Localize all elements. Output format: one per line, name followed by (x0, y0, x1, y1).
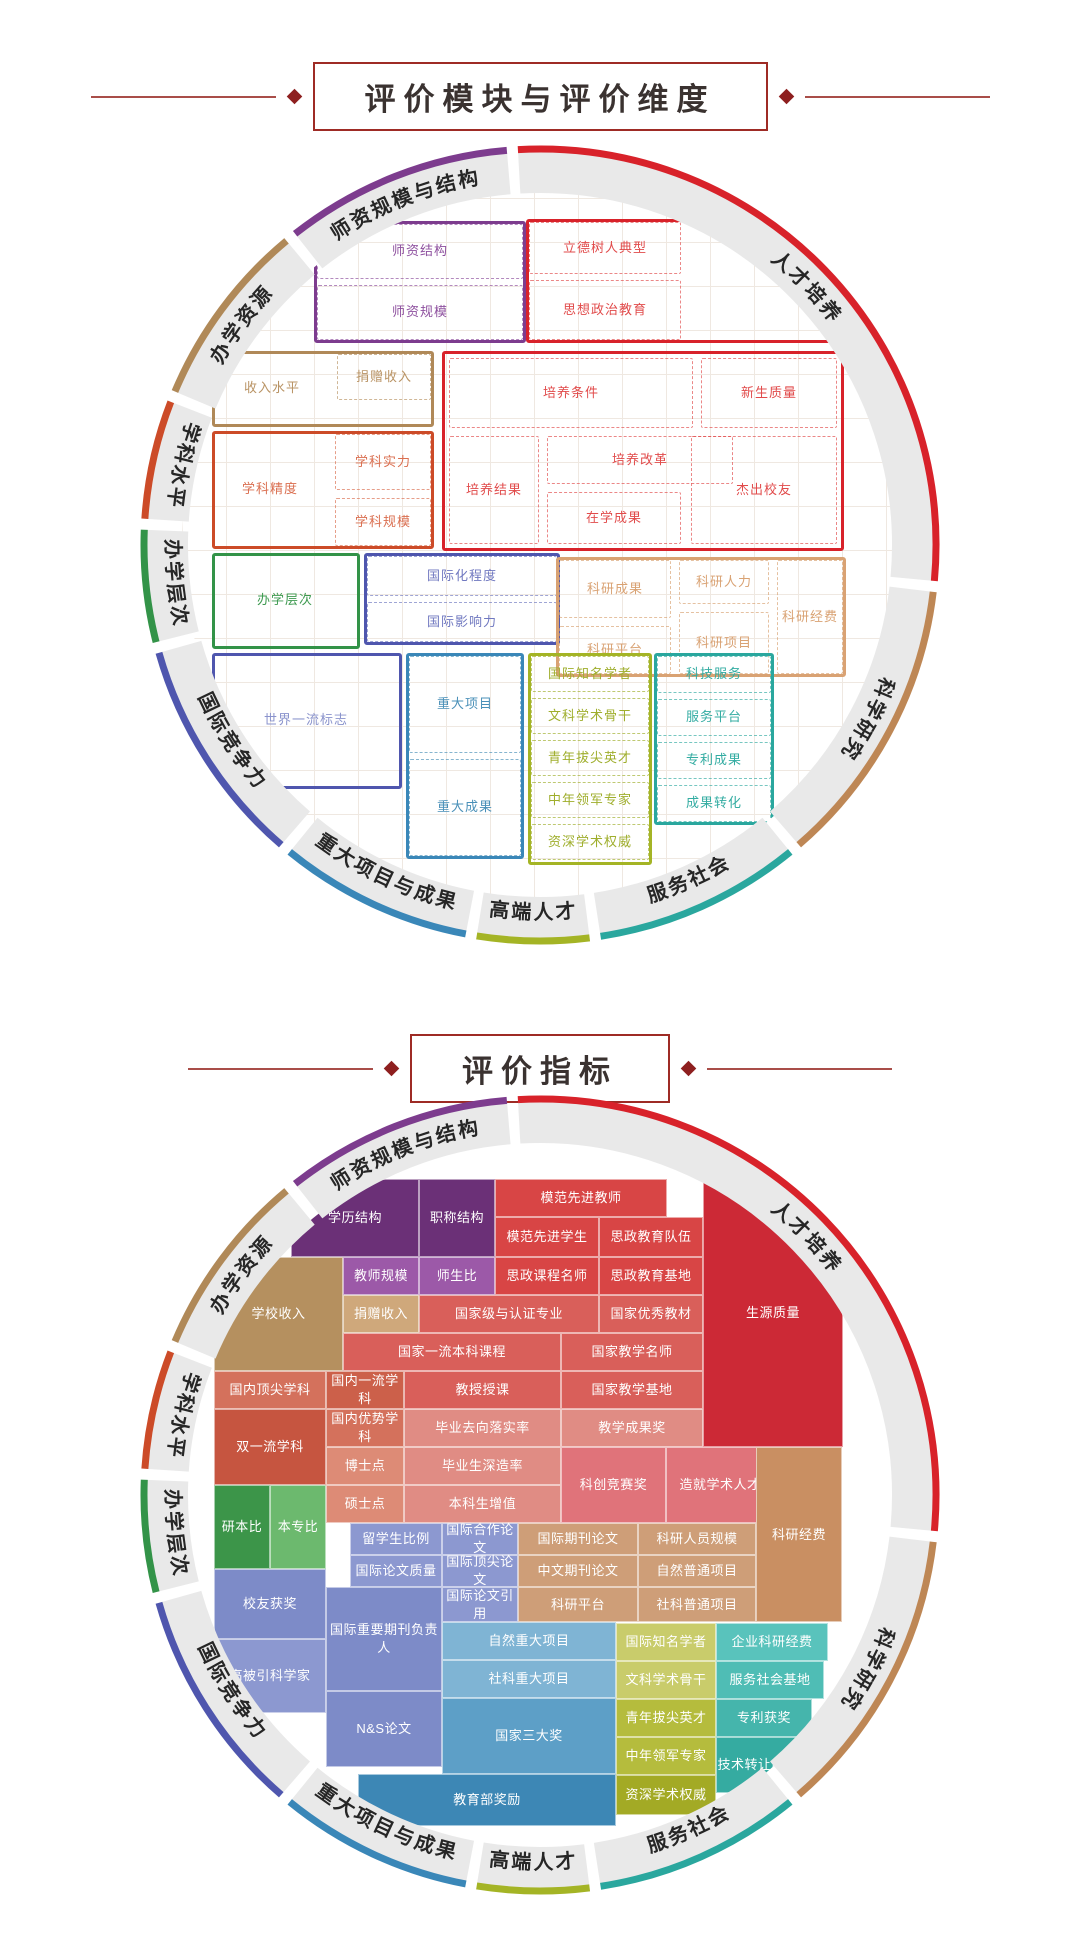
indicator-cell: 国际期刊论文 (518, 1523, 638, 1555)
indicator-label: 企业科研经费 (731, 1633, 812, 1651)
ring-color-arc-高端人才 (477, 1886, 590, 1891)
indicator-cell: 国内优势学科 (326, 1409, 404, 1447)
indicator-cell: 教学成果奖 (561, 1409, 703, 1447)
indicator-label: 职称结构 (430, 1209, 484, 1227)
indicator-label: 国际重要期刊负责人 (327, 1621, 441, 1656)
indicator-label: 造就学术人才 (679, 1476, 760, 1494)
dimension-cell: 成果转化 (657, 785, 771, 822)
indicator-label: 留学生比例 (362, 1530, 430, 1548)
diamond-icon (681, 1061, 697, 1077)
indicator-cell: 社科普通项目 (638, 1587, 756, 1622)
indicator-cell: 国家教学名师 (561, 1333, 703, 1371)
indicator-label: 国家教学名师 (591, 1343, 672, 1361)
dimension-label: 科研项目 (696, 635, 752, 652)
indicator-cell: 博士点 (326, 1447, 404, 1485)
indicator-label: 教师规模 (354, 1267, 408, 1285)
indicator-label: 校友获奖 (243, 1595, 297, 1613)
dimension-cell: 文科学术骨干 (531, 698, 649, 734)
dimension-label: 培养结果 (466, 482, 522, 499)
dimension-label: 成果转化 (686, 795, 742, 812)
diamond-icon (778, 89, 794, 105)
indicator-cell: 师生比 (419, 1257, 495, 1295)
infographic-page: 评价模块与评价维度 师资结构师资规模立德树人典型思想政治教育收入水平捐赠收入培养… (0, 0, 1080, 1950)
dimension-cell: 资深学术权威 (531, 824, 649, 860)
indicator-label: 思政教育队伍 (610, 1228, 691, 1246)
indicator-label: 中年领军专家 (625, 1747, 706, 1765)
indicator-label: 国家级与认证专业 (455, 1305, 563, 1323)
indicator-label: 双一流学科 (236, 1438, 304, 1456)
indicator-label: 模范先进学生 (506, 1228, 587, 1246)
indicator-cell: 中年领军专家 (616, 1737, 716, 1775)
indicator-cell: 服务社会基地 (716, 1661, 824, 1699)
indicator-cell: 教授授课 (404, 1371, 561, 1409)
indicator-cell: 毕业生深造率 (404, 1447, 561, 1485)
indicator-cell: 职称结构 (419, 1179, 495, 1257)
indicator-cell: 国家教学基地 (561, 1371, 703, 1409)
indicator-cell: 高被引科学家 (214, 1639, 326, 1713)
indicator-label: 国内顶尖学科 (229, 1381, 310, 1399)
indicator-cell: 本专比 (270, 1485, 326, 1569)
indicator-cell: 中文期刊论文 (518, 1555, 638, 1587)
module-dimension-diagram: 师资结构师资规模立德树人典型思想政治教育收入水平捐赠收入培养条件新生质量培养改革… (140, 145, 940, 945)
indicator-cell: 毕业去向落实率 (404, 1409, 561, 1447)
indicator-cell: 文科学术骨干 (616, 1661, 716, 1699)
indicator-cell: 国际重要期刊负责人 (326, 1587, 442, 1691)
dimension-label: 资深学术权威 (548, 834, 632, 851)
indicator-cell: 科研经费 (756, 1447, 842, 1622)
indicator-label: 技术转让收入 (717, 1756, 798, 1774)
indicator-cell: 国际论文质量 (350, 1555, 442, 1587)
indicator-cell: 自然重大项目 (442, 1622, 616, 1660)
indicator-label: 学校收入 (251, 1305, 305, 1323)
dimension-label: 办学层次 (257, 592, 313, 609)
dimension-cell: 服务平台 (657, 699, 771, 736)
indicator-label: 文科学术骨干 (625, 1671, 706, 1689)
indicator-cell: 国内顶尖学科 (214, 1371, 326, 1409)
indicator-cell: 企业科研经费 (716, 1623, 828, 1661)
indicator-cell: 留学生比例 (350, 1523, 442, 1555)
dimension-label: 培养改革 (612, 452, 668, 469)
dimension-label: 科研经费 (782, 609, 838, 626)
indicator-cell: 思政教育队伍 (599, 1217, 703, 1257)
indicator-diagram: 学历结构职称结构模范先进教师模范先进学生思政教育队伍教师规模师生比思政课程名师思… (140, 1095, 940, 1895)
dimension-cell: 捐赠收入 (337, 354, 431, 400)
diamond-icon (286, 89, 302, 105)
indicator-label: 国际论文引用 (443, 1587, 517, 1622)
left-rule-line (91, 96, 276, 98)
dimension-cell: 杰出校友 (691, 436, 837, 544)
dimension-label: 文科学术骨干 (548, 708, 632, 725)
dimension-label: 捐赠收入 (356, 369, 412, 386)
dimension-label: 师资结构 (392, 243, 448, 260)
ring-color-arc-办学层次 (144, 530, 156, 642)
dimension-cell: 新生质量 (701, 358, 837, 428)
dimension-cell: 科技服务 (657, 656, 771, 693)
indicator-cell: 资深学术权威 (616, 1775, 716, 1815)
indicator-cell: 国家优秀教材 (599, 1295, 703, 1333)
diamond-icon (384, 1061, 400, 1077)
dimension-cell: 思想政治教育 (529, 280, 681, 340)
indicator-cell: 模范先进教师 (495, 1179, 667, 1217)
indicator-label: 国际知名学者 (625, 1633, 706, 1651)
dimension-cell: 办学层次 (215, 556, 355, 644)
section2-header: 评价指标 (0, 1034, 1080, 1103)
indicator-label: 硕士点 (345, 1495, 386, 1513)
dimension-label: 新生质量 (741, 385, 797, 402)
dimension-label: 收入水平 (244, 380, 300, 397)
ring-color-arc-高端人才 (477, 936, 590, 941)
dimension-label: 服务平台 (686, 709, 742, 726)
dimension-label: 专利成果 (686, 752, 742, 769)
ring-color-arc-学科水平 (145, 402, 171, 519)
dimension-label: 立德树人典型 (563, 240, 647, 257)
dimension-cell: 在学成果 (547, 492, 681, 544)
indicator-cell: 思政课程名师 (495, 1257, 599, 1295)
indicator-label: 思政课程名师 (506, 1267, 587, 1285)
indicator-cell: 学历结构 (291, 1179, 419, 1257)
dimension-label: 国际知名学者 (548, 666, 632, 683)
indicator-label: 国际期刊论文 (537, 1530, 618, 1548)
ring-band-高端人才 (480, 1863, 586, 1868)
ring-band-办学层次 (167, 531, 178, 637)
dimension-label: 学科规模 (355, 514, 411, 531)
indicator-cell: 青年拔尖英才 (616, 1699, 716, 1737)
indicator-label: 科研平台 (551, 1596, 605, 1614)
indicator-label: 国际顶尖论文 (443, 1553, 517, 1588)
dimension-cell: 师资规模 (317, 285, 523, 340)
indicator-cell: 国家三大奖 (442, 1698, 616, 1774)
section2-title: 评价指标 (410, 1034, 670, 1103)
dimension-label: 青年拔尖英才 (548, 750, 632, 767)
dimension-label: 世界一流标志 (264, 712, 348, 729)
indicator-label: 专利获奖 (737, 1709, 791, 1727)
dimension-cell: 重大项目 (409, 656, 521, 753)
indicator-content: 学历结构职称结构模范先进教师模范先进学生思政教育队伍教师规模师生比思政课程名师思… (182, 1137, 898, 1853)
indicator-label: 本科生增值 (449, 1495, 517, 1513)
module-dimension-content: 师资结构师资规模立德树人典型思想政治教育收入水平捐赠收入培养条件新生质量培养改革… (182, 187, 898, 903)
dimension-cell: 科研经费 (777, 560, 843, 674)
indicator-cell: 模范先进学生 (495, 1217, 599, 1257)
dimension-label: 重大项目 (437, 696, 493, 713)
indicator-cell: 技术转让收入 (716, 1737, 800, 1793)
indicator-cell: 教育部奖励 (358, 1774, 616, 1826)
indicator-label: 资深学术权威 (625, 1786, 706, 1804)
dimension-cell: 科研成果 (559, 560, 671, 618)
dimension-label: 国际化程度 (427, 568, 497, 585)
dimension-label: 科研成果 (587, 581, 643, 598)
dimension-label: 国际影响力 (427, 614, 497, 631)
indicator-cell: 科研人员规模 (638, 1523, 756, 1555)
indicator-label: 服务社会基地 (729, 1671, 810, 1689)
dimension-label: 师资规模 (392, 304, 448, 321)
dimension-label: 学科实力 (355, 454, 411, 471)
ring-band-办学层次 (167, 1481, 178, 1587)
indicator-label: 捐赠收入 (354, 1305, 408, 1323)
dimension-label: 重大成果 (437, 799, 493, 816)
indicator-label: 学历结构 (328, 1209, 382, 1227)
indicator-label: 研本比 (222, 1518, 263, 1536)
indicator-label: 毕业生深造率 (442, 1457, 523, 1475)
indicator-label: 国家三大奖 (495, 1727, 563, 1745)
dimension-cell: 立德树人典型 (529, 222, 681, 274)
indicator-label: 教授授课 (455, 1381, 509, 1399)
indicator-cell: 思政教育基地 (599, 1257, 703, 1295)
indicator-label: 博士点 (345, 1457, 386, 1475)
indicator-cell: 捐赠收入 (343, 1295, 419, 1333)
dimension-cell: 国际知名学者 (531, 656, 649, 692)
dimension-cell: 国际化程度 (367, 556, 557, 596)
dimension-cell: 重大成果 (409, 759, 521, 856)
indicator-cell: 国际顶尖论文 (442, 1555, 518, 1587)
indicator-cell: 校友获奖 (214, 1569, 326, 1639)
indicator-label: 本专比 (278, 1518, 319, 1536)
indicator-label: N&S论文 (356, 1720, 411, 1738)
indicator-cell: 专利获奖 (716, 1699, 812, 1737)
indicator-label: 科研经费 (772, 1526, 826, 1544)
indicator-cell: 本科生增值 (404, 1485, 561, 1523)
dimension-cell: 中年领军专家 (531, 782, 649, 818)
indicator-cell: 生源质量 (703, 1179, 843, 1447)
dimension-label: 中年领军专家 (548, 792, 632, 809)
right-rule-line (707, 1068, 892, 1070)
indicator-cell: 科研平台 (518, 1587, 638, 1622)
dimension-label: 在学成果 (586, 510, 642, 527)
dimension-cell: 科研人力 (679, 560, 769, 604)
indicator-label: 毕业去向落实率 (435, 1419, 530, 1437)
indicator-label: 国家一流本科课程 (398, 1343, 506, 1361)
dimension-cell: 师资结构 (317, 224, 523, 279)
indicator-cell: N&S论文 (326, 1691, 442, 1767)
indicator-label: 国内优势学科 (327, 1410, 403, 1445)
indicator-cell: 国家级与认证专业 (419, 1295, 599, 1333)
dimension-label: 杰出校友 (736, 482, 792, 499)
indicator-label: 国际论文质量 (355, 1562, 436, 1580)
indicator-label: 社科重大项目 (488, 1670, 569, 1688)
indicator-label: 教育部奖励 (453, 1791, 521, 1809)
dimension-label: 思想政治教育 (563, 302, 647, 319)
dimension-cell: 学科实力 (335, 434, 431, 490)
indicator-label: 教学成果奖 (598, 1419, 666, 1437)
ring-band-高端人才 (480, 913, 586, 918)
dimension-label: 科研人力 (696, 574, 752, 591)
dimension-label: 培养条件 (543, 385, 599, 402)
indicator-label: 青年拔尖英才 (625, 1709, 706, 1727)
indicator-cell: 国际合作论文 (442, 1523, 518, 1555)
indicator-cell: 自然普通项目 (638, 1555, 756, 1587)
indicator-cell: 国际知名学者 (616, 1623, 716, 1661)
indicator-label: 自然重大项目 (488, 1632, 569, 1650)
indicator-label: 科创竞赛奖 (580, 1476, 648, 1494)
dimension-cell: 培养结果 (449, 436, 539, 544)
indicator-cell: 硕士点 (326, 1485, 404, 1523)
indicator-label: 国家优秀教材 (610, 1305, 691, 1323)
dimension-cell: 收入水平 (215, 354, 329, 422)
right-rule-line (805, 96, 990, 98)
indicator-label: 国内一流学科 (327, 1372, 403, 1407)
dimension-label: 学科精度 (242, 481, 298, 498)
indicator-cell: 社科重大项目 (442, 1660, 616, 1698)
dimension-cell: 学科精度 (215, 434, 325, 544)
dimension-cell: 国际影响力 (367, 602, 557, 642)
left-rule-line (188, 1068, 373, 1070)
indicator-label: 师生比 (437, 1267, 478, 1285)
indicator-label: 模范先进教师 (540, 1189, 621, 1207)
indicator-label: 生源质量 (746, 1304, 800, 1322)
indicator-label: 高被引科学家 (229, 1667, 310, 1685)
dimension-label: 科技服务 (686, 666, 742, 683)
dimension-cell: 专利成果 (657, 742, 771, 779)
ring-color-arc-学科水平 (145, 1352, 171, 1469)
indicator-label: 社科普通项目 (656, 1596, 737, 1614)
dimension-cell: 培养条件 (449, 358, 693, 428)
indicator-label: 思政教育基地 (610, 1267, 691, 1285)
indicator-label: 国家教学基地 (591, 1381, 672, 1399)
indicator-cell: 教师规模 (343, 1257, 419, 1295)
indicator-cell: 学校收入 (214, 1257, 343, 1371)
section1-title: 评价模块与评价维度 (313, 62, 768, 131)
dimension-cell: 世界一流标志 (215, 656, 397, 784)
indicator-cell: 国内一流学科 (326, 1371, 404, 1409)
dimension-cell: 青年拔尖英才 (531, 740, 649, 776)
indicator-label: 中文期刊论文 (537, 1562, 618, 1580)
indicator-cell: 双一流学科 (214, 1409, 326, 1485)
section1-header: 评价模块与评价维度 (0, 62, 1080, 131)
ring-color-arc-办学层次 (144, 1480, 156, 1592)
indicator-cell: 研本比 (214, 1485, 270, 1569)
indicator-label: 自然普通项目 (656, 1562, 737, 1580)
indicator-cell: 科创竞赛奖 (561, 1447, 666, 1523)
indicator-label: 科研人员规模 (656, 1530, 737, 1548)
indicator-label: 国际合作论文 (443, 1521, 517, 1556)
dimension-cell: 学科规模 (335, 498, 431, 546)
indicator-cell: 国家一流本科课程 (343, 1333, 561, 1371)
indicator-cell: 国际论文引用 (442, 1587, 518, 1622)
